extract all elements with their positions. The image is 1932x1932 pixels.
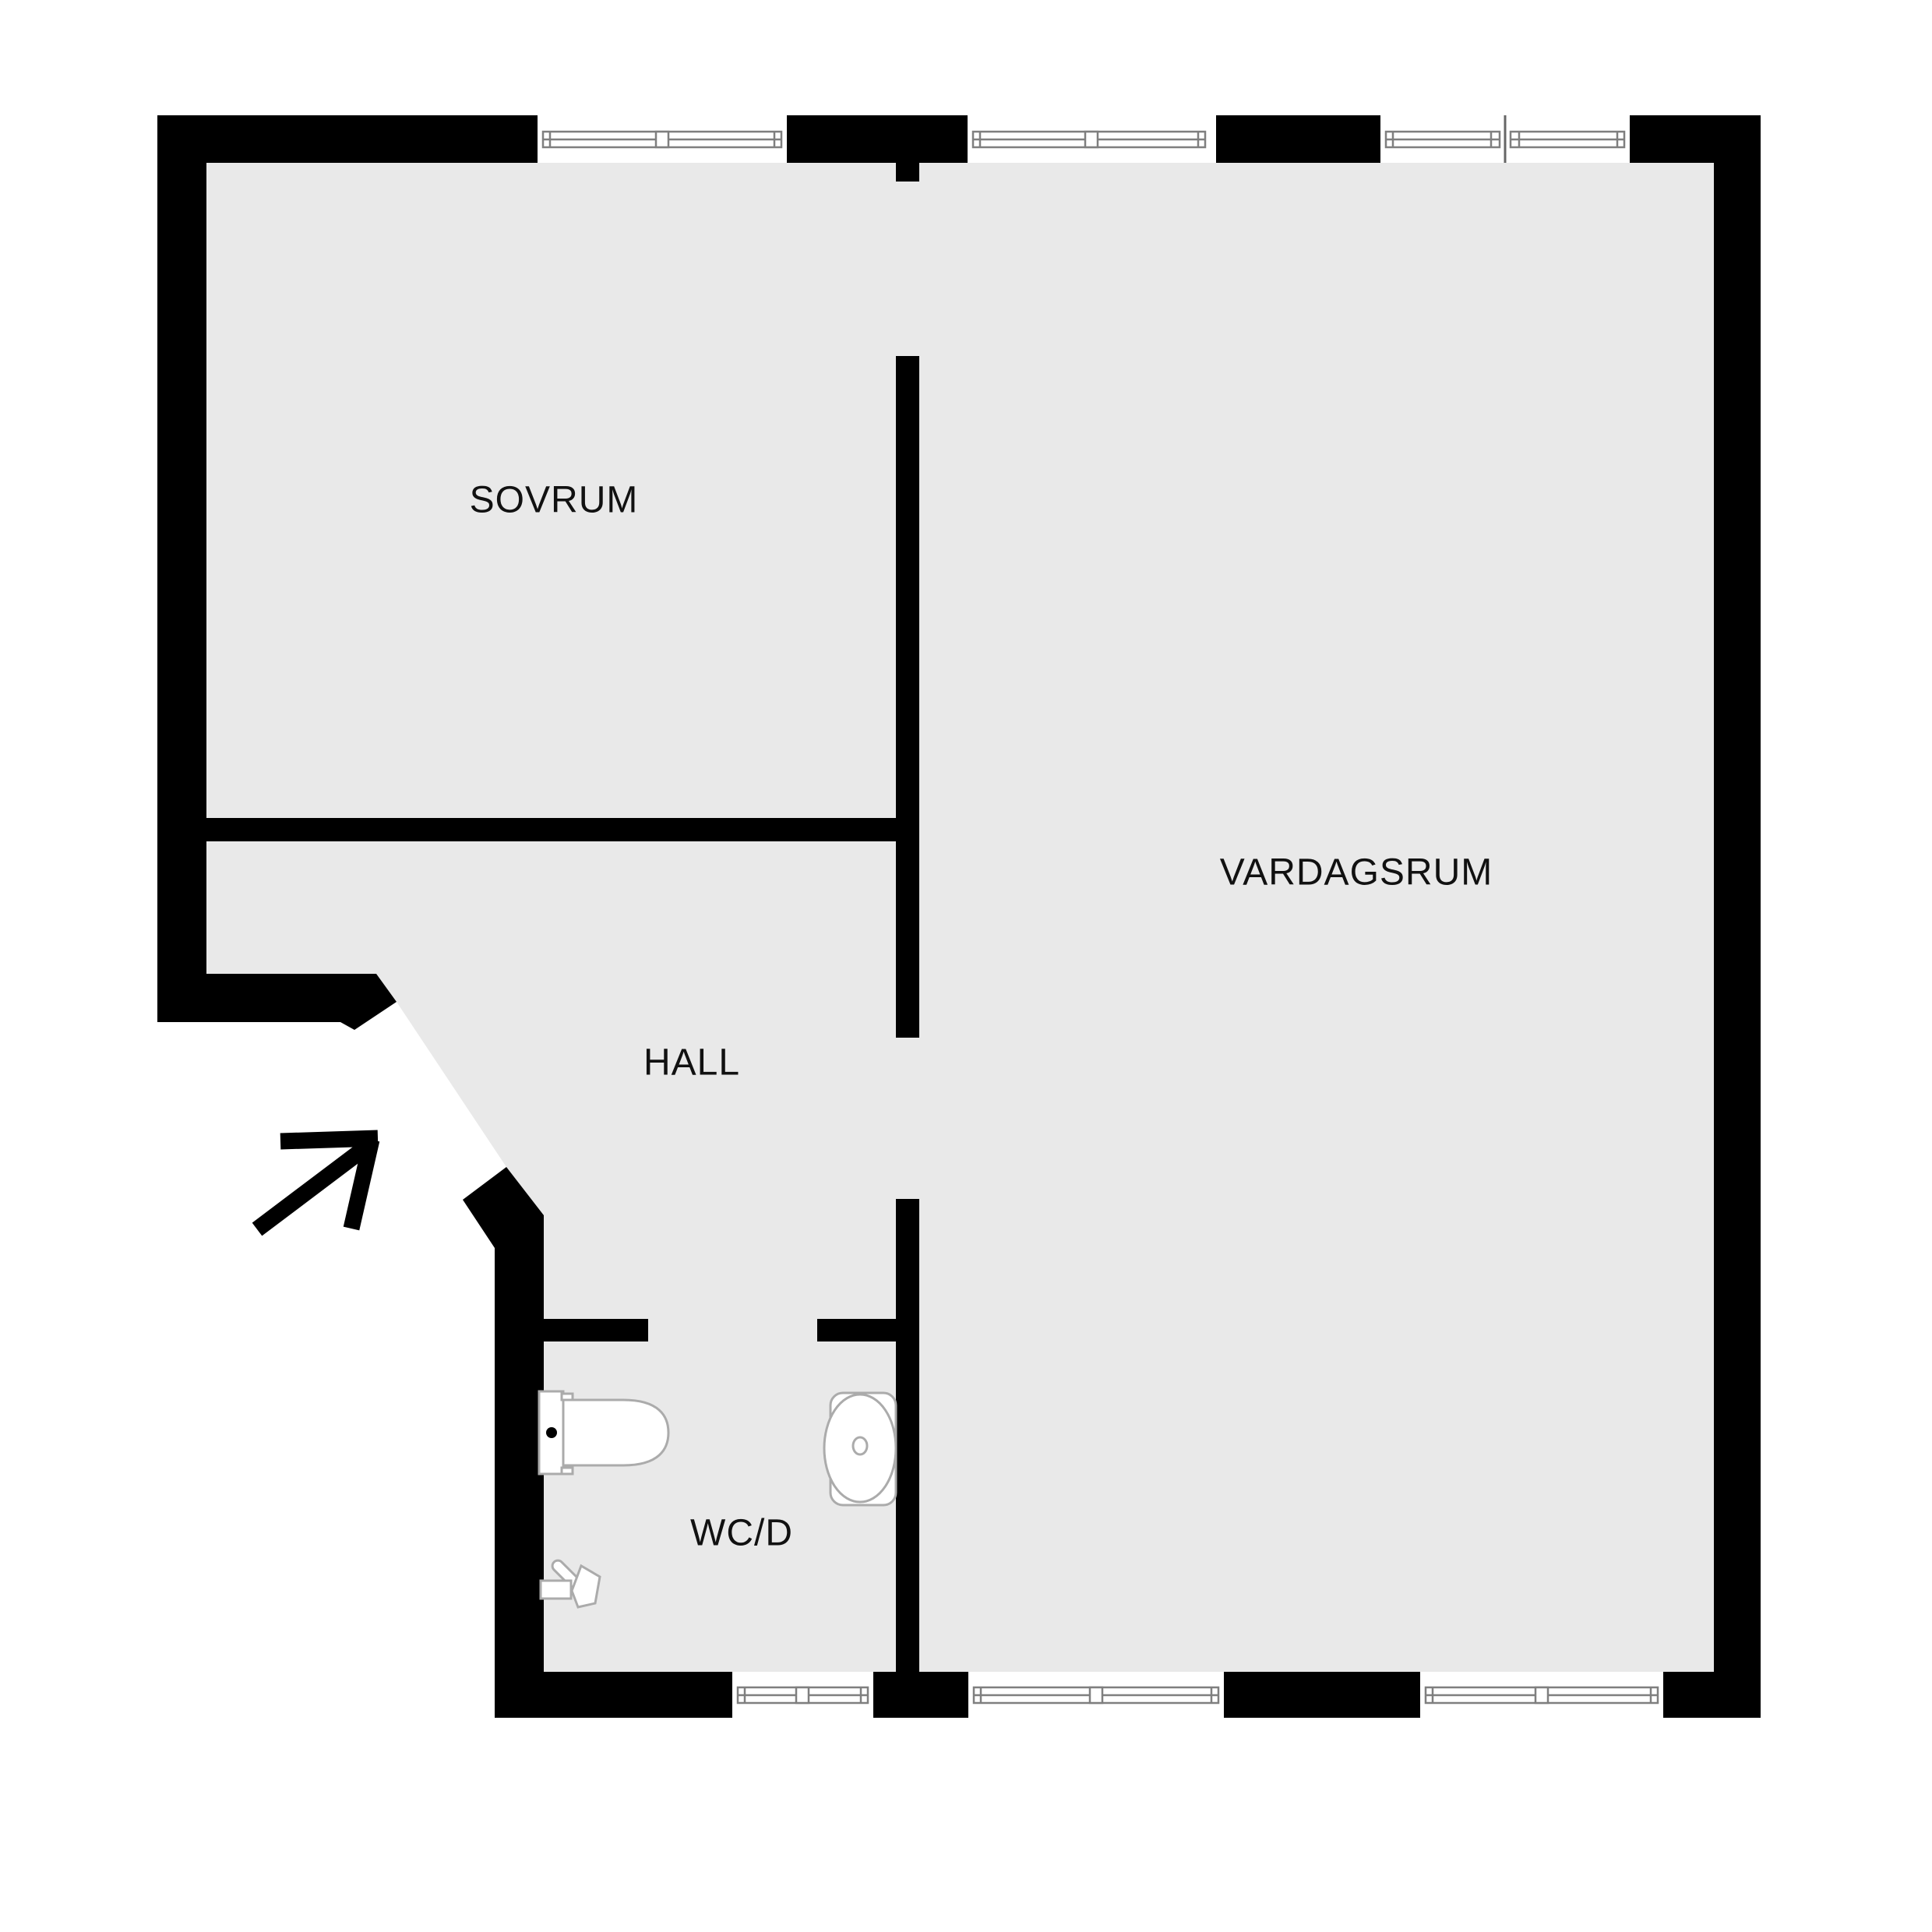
window-icon	[968, 115, 1216, 163]
window-center-post	[1090, 1687, 1102, 1703]
room-label-hall: HALL	[643, 1042, 740, 1084]
wall-segment	[157, 115, 206, 1022]
window-icon	[1420, 1672, 1663, 1718]
room-label-vardagsrum: VARDAGSRUM	[1220, 851, 1493, 894]
room-label-wcd: WC/D	[690, 1512, 793, 1555]
toilet-flush-dot	[546, 1427, 557, 1438]
wall-segment	[157, 115, 538, 163]
wall-segment	[896, 356, 919, 1038]
window-center-post	[1535, 1687, 1548, 1703]
room-label-sovrum: SOVRUM	[470, 479, 639, 522]
entrance-arrow-icon	[257, 1138, 378, 1229]
wall-segment	[1663, 1672, 1761, 1718]
entrance-jamb-wall	[157, 974, 397, 1030]
floor-area	[206, 163, 1714, 1672]
wall-segment	[873, 1672, 968, 1718]
toilet-bowl	[563, 1400, 668, 1465]
wall-segment	[1714, 115, 1761, 1718]
window-icon	[1380, 115, 1630, 163]
shower-bracket	[541, 1581, 571, 1599]
wall-segment	[896, 163, 919, 182]
wc-west-wall	[463, 1167, 544, 1718]
wall-segment	[1224, 1672, 1420, 1718]
window-icon	[968, 1672, 1224, 1718]
wall-segment	[817, 1319, 919, 1341]
wall-segment	[206, 818, 919, 841]
window-icon	[732, 1672, 873, 1718]
wall-segment	[787, 115, 968, 163]
floorplan: SOVRUM VARDAGSRUM HALL WC/D	[0, 0, 1932, 1932]
toilet-hinge	[562, 1468, 573, 1474]
window-center-post	[1085, 132, 1098, 147]
window-icon	[538, 115, 787, 163]
window-center-post	[656, 132, 668, 147]
wall-segment	[1216, 115, 1380, 163]
wall-segment	[544, 1319, 648, 1341]
wall-segment	[896, 1199, 919, 1718]
toilet-icon	[539, 1391, 668, 1474]
sink-icon	[824, 1393, 896, 1505]
floorplan-canvas	[0, 0, 1932, 1932]
window-center-post	[796, 1687, 809, 1703]
sink-drain	[853, 1437, 867, 1454]
